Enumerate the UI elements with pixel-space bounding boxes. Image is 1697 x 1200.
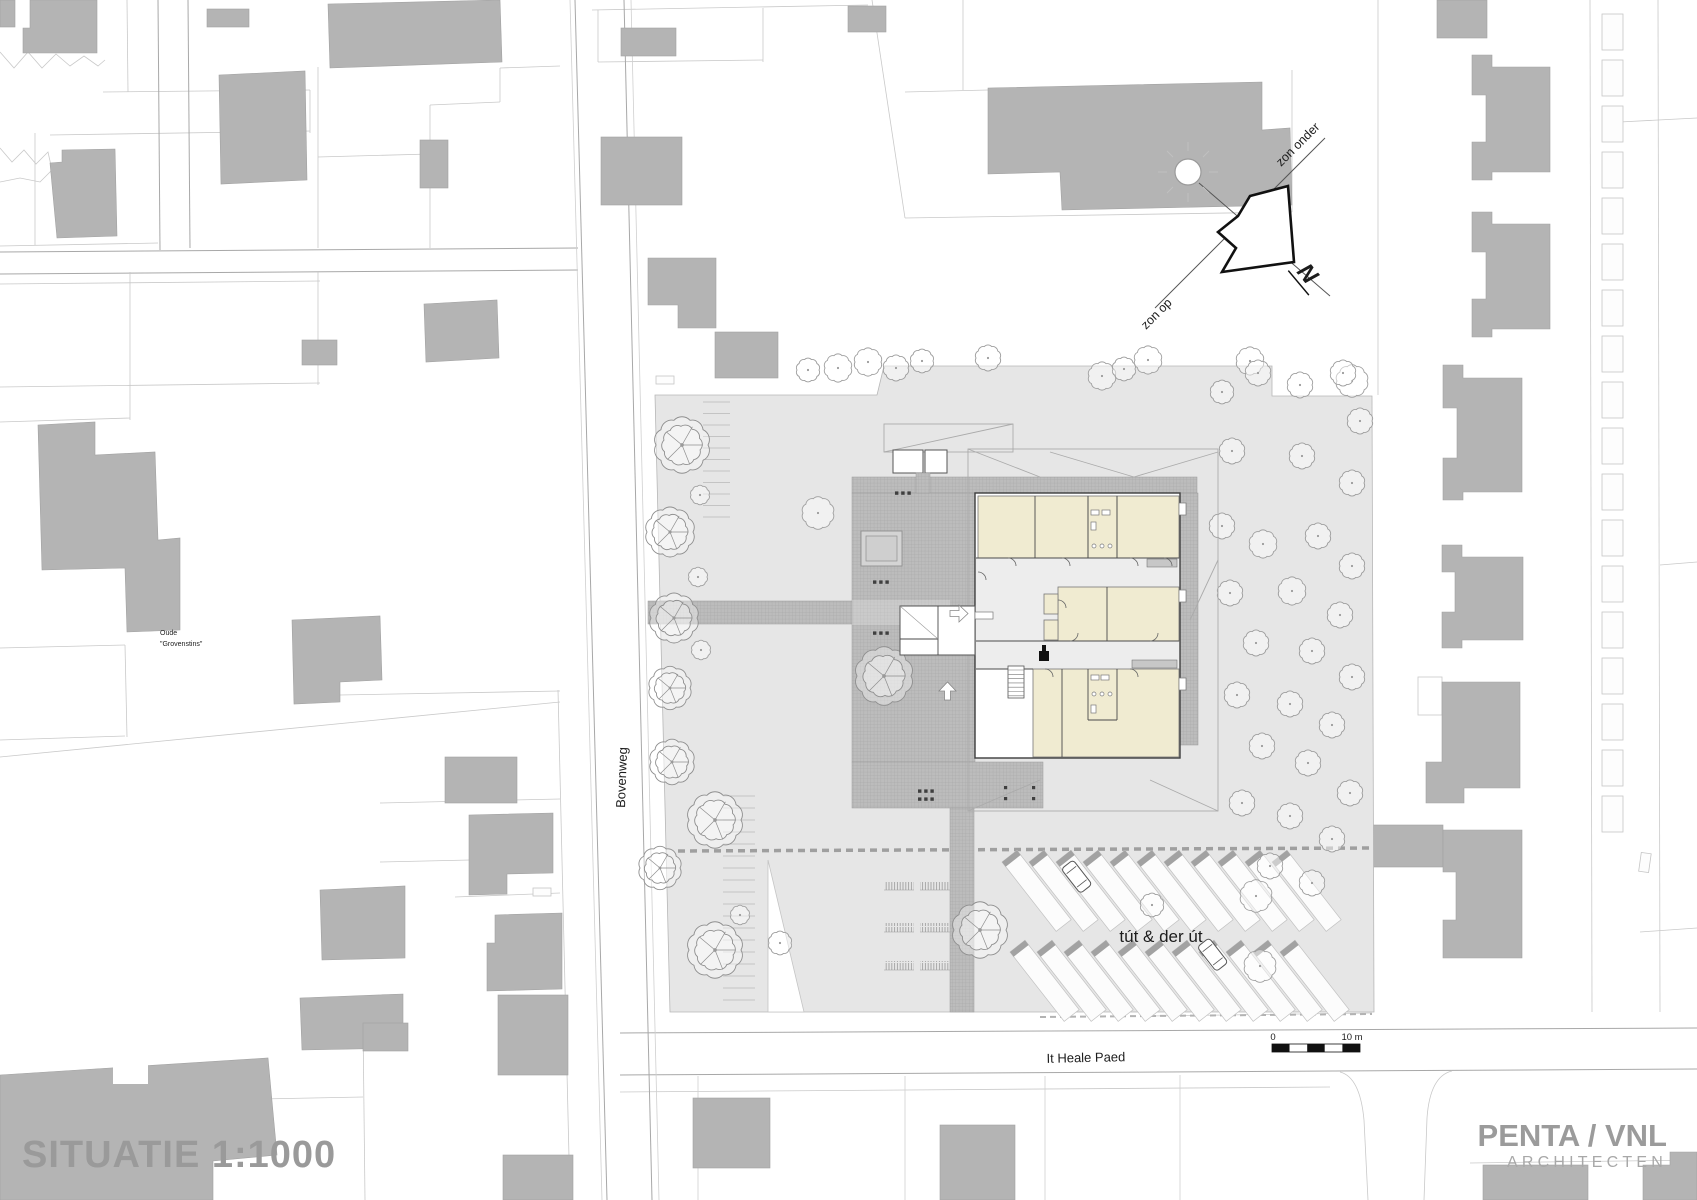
- tree-icon: [1299, 870, 1324, 896]
- tree-trunk: [1151, 904, 1153, 906]
- garden-shed: [1602, 198, 1623, 234]
- tree-icon: [692, 640, 711, 660]
- tree-trunk: [1147, 359, 1149, 361]
- tree-trunk: [1342, 372, 1344, 374]
- tree-icon: [1278, 577, 1305, 605]
- scale-segment: [1342, 1044, 1360, 1052]
- scale-bar: 0 10 m: [1270, 1032, 1362, 1052]
- building-footprint: [601, 137, 682, 205]
- tree-icon: [649, 666, 691, 709]
- tree-trunk: [1261, 745, 1263, 747]
- tree-trunk: [1101, 375, 1103, 377]
- room-small: [1044, 594, 1058, 614]
- paving-east-terrace: [1180, 493, 1198, 745]
- garden-shed: [1602, 612, 1623, 648]
- paving-north-terrace: [852, 477, 1197, 493]
- building-footprint: [988, 82, 1292, 210]
- utility-box: [656, 376, 674, 384]
- tree-icon: [768, 931, 791, 955]
- garden-shed: [1602, 290, 1623, 326]
- tree-trunk: [713, 948, 717, 952]
- tree-icon: [1337, 780, 1362, 806]
- building-footprint: [445, 757, 517, 803]
- site-plan-sheet: N zon op zon onder 0 10 m Bovenweg It He…: [0, 0, 1697, 1200]
- tree-trunk: [895, 367, 897, 369]
- installation-unit: [1147, 559, 1177, 567]
- tree-trunk: [713, 818, 717, 822]
- tree-trunk: [1311, 650, 1313, 652]
- tree-trunk: [1317, 535, 1319, 537]
- tree-icon: [646, 507, 694, 557]
- garden-shed: [1602, 474, 1623, 510]
- tree-icon: [802, 497, 834, 530]
- tree-trunk: [1229, 592, 1231, 594]
- tree-icon: [1347, 408, 1372, 434]
- tree-trunk: [1236, 694, 1238, 696]
- tree-icon: [1249, 530, 1276, 558]
- tree-trunk: [987, 357, 989, 359]
- building-footprint: [1437, 0, 1487, 38]
- building-footprint-rowhouse: [1442, 545, 1523, 648]
- tree-icon: [1088, 362, 1115, 390]
- bench-dot: [930, 797, 933, 800]
- tree-trunk: [1262, 543, 1264, 545]
- room-small: [1044, 620, 1058, 640]
- paving-connector: [916, 473, 930, 493]
- bike-rack: [920, 923, 950, 932]
- tree-icon: [1299, 638, 1324, 664]
- garden-shed: [1602, 336, 1623, 372]
- tree-icon: [1243, 630, 1268, 656]
- tree-icon: [1305, 523, 1330, 549]
- tree-trunk: [1221, 391, 1223, 393]
- tree-icon: [1339, 470, 1364, 496]
- tree-icon: [650, 739, 694, 785]
- tree-icon: [691, 485, 710, 505]
- building-footprint: [693, 1098, 770, 1168]
- installation-unit: [1132, 660, 1177, 668]
- garden-shed: [1602, 60, 1623, 96]
- building-footprint: [621, 28, 676, 56]
- tree-trunk: [1311, 882, 1313, 884]
- tree-icon: [1277, 691, 1302, 717]
- bench-dot: [918, 789, 921, 792]
- tree-trunk: [1359, 420, 1361, 422]
- bench-dot: [873, 580, 876, 583]
- building-footprint: [469, 813, 553, 895]
- building-footprint: [23, 0, 97, 53]
- tree-icon: [1140, 893, 1163, 917]
- stairs: [1008, 666, 1024, 698]
- tree-icon: [1240, 880, 1272, 913]
- tree-icon: [1219, 438, 1244, 464]
- building-footprint: [328, 0, 502, 68]
- tree-trunk: [1291, 590, 1293, 592]
- tree-icon: [824, 354, 851, 382]
- tree-icon: [796, 358, 819, 382]
- tree-trunk: [699, 494, 701, 496]
- garden-shed: [1602, 658, 1623, 694]
- tree-icon: [1244, 950, 1276, 983]
- tree-icon: [1277, 803, 1302, 829]
- bike-rack: [920, 881, 950, 890]
- tree-icon: [1287, 372, 1312, 398]
- room: [1117, 496, 1179, 558]
- building-footprint: [50, 149, 117, 238]
- tree-icon: [1245, 360, 1270, 386]
- building-footprint-rowhouse: [1472, 55, 1550, 180]
- pergola-post: [1004, 786, 1007, 789]
- building-footprint-oude-grovenstins: [38, 422, 180, 632]
- tree-trunk: [1255, 895, 1257, 897]
- old-building-label-line2: "Grovenstins": [160, 641, 203, 648]
- tree-icon: [689, 567, 708, 587]
- tree-icon: [1327, 602, 1352, 628]
- bench-dot: [879, 631, 882, 634]
- planter: [861, 531, 902, 566]
- building-footprint: [1373, 825, 1443, 867]
- tree-icon: [1249, 733, 1274, 759]
- bench-dot: [895, 491, 898, 494]
- bench-dot: [918, 797, 921, 800]
- tree-trunk: [680, 443, 684, 447]
- tree-icon: [953, 902, 1008, 959]
- tree-icon: [1209, 513, 1234, 539]
- logo-subtitle: ARCHITECTEN: [1507, 1154, 1667, 1171]
- sun-icon: [1158, 142, 1218, 202]
- tree-icon: [1210, 380, 1233, 404]
- tree-trunk: [1231, 450, 1233, 452]
- pergola-post: [1032, 797, 1035, 800]
- paving-south-plaza: [852, 762, 1043, 808]
- tree-icon: [639, 846, 681, 889]
- garden-shed: [1602, 704, 1623, 740]
- building-footprint: [320, 886, 405, 960]
- bench-dot: [924, 789, 927, 792]
- building-footprint: [424, 300, 499, 362]
- building-footprint-rowhouse: [1472, 212, 1550, 337]
- tree-icon: [1289, 443, 1314, 469]
- tree-trunk: [669, 687, 672, 690]
- bike-rack: [884, 881, 914, 890]
- garden-shed: [1602, 796, 1623, 832]
- tree-icon: [883, 355, 908, 381]
- tree-trunk: [1331, 838, 1333, 840]
- building-footprint: [848, 6, 886, 32]
- storage-box: [893, 450, 923, 473]
- building-footprint: [498, 995, 568, 1075]
- tree-icon: [854, 348, 881, 376]
- garden-shed: [1602, 566, 1623, 602]
- tree-icon: [1339, 664, 1364, 690]
- building-footprint: [292, 616, 382, 704]
- tree-icon: [650, 593, 698, 643]
- sheet-title: SITUATIE 1:1000: [22, 1134, 336, 1176]
- tree-trunk: [668, 530, 671, 533]
- garden-shed: [1602, 106, 1623, 142]
- building-footprint: [363, 1023, 408, 1051]
- tree-trunk: [779, 942, 781, 944]
- building-footprint: [207, 9, 249, 27]
- garden-shed: [1602, 428, 1623, 464]
- compass-north-label: N: [1291, 259, 1323, 290]
- tree-icon: [1134, 346, 1161, 374]
- building-footprint: [648, 258, 716, 328]
- room: [1058, 587, 1179, 641]
- site-plan-drawing: N zon op zon onder 0 10 m Bovenweg It He…: [0, 0, 1697, 1200]
- tree-trunk: [697, 576, 699, 578]
- building-footprint: [503, 1155, 573, 1200]
- tree-trunk: [739, 914, 741, 916]
- tree-trunk: [1269, 865, 1271, 867]
- street-label-it-heale-paed: It Heale Paed: [1046, 1049, 1125, 1066]
- bench-dot: [879, 580, 882, 583]
- building-footprint: [940, 1125, 1015, 1200]
- old-building-label-line1: Oude: [160, 630, 177, 637]
- tree-trunk: [1255, 642, 1257, 644]
- scale-end-label: 10 m: [1341, 1032, 1362, 1043]
- building-footprint: [715, 332, 778, 378]
- scale-segment: [1325, 1044, 1343, 1052]
- tree-trunk: [1299, 384, 1301, 386]
- tree-trunk: [1339, 614, 1341, 616]
- garden-shed: [1602, 382, 1623, 418]
- tree-icon: [655, 417, 710, 473]
- bike-rack: [884, 923, 914, 932]
- tree-trunk: [1351, 565, 1353, 567]
- tree-trunk: [1331, 724, 1333, 726]
- bench-dot: [924, 797, 927, 800]
- scale-start-label: 0: [1270, 1032, 1275, 1043]
- garden-shed: [1602, 244, 1623, 280]
- garden-shed: [1602, 750, 1623, 786]
- garden-shed: [1602, 14, 1623, 50]
- building-footprint: [219, 71, 307, 184]
- tree-icon: [1112, 357, 1135, 381]
- building-footprint: [420, 140, 448, 188]
- street-label-bovenweg: Bovenweg: [613, 747, 630, 808]
- tree-trunk: [671, 761, 674, 764]
- tree-icon: [688, 922, 743, 979]
- storage-box: [925, 450, 947, 473]
- tree-trunk: [837, 367, 839, 369]
- bench-dot: [873, 631, 876, 634]
- garden-shed: [1602, 520, 1623, 556]
- scale-segment: [1290, 1044, 1308, 1052]
- site-name-label: tút & der út: [1119, 927, 1202, 946]
- tree-icon: [1224, 682, 1249, 708]
- tree-trunk: [700, 649, 702, 651]
- tree-trunk: [1307, 762, 1309, 764]
- sunrise-label: zon op: [1138, 296, 1174, 332]
- bench-dot: [907, 491, 910, 494]
- building-footprint: [487, 913, 562, 991]
- utility-box: [533, 888, 551, 896]
- tree-trunk: [1351, 482, 1353, 484]
- room: [1033, 669, 1179, 757]
- tree-trunk: [978, 928, 982, 932]
- tree-trunk: [1257, 372, 1259, 374]
- tree-trunk: [921, 360, 923, 362]
- bench-dot: [885, 580, 888, 583]
- room: [978, 496, 1088, 558]
- building-footprint: [302, 340, 337, 365]
- tree-trunk: [1123, 368, 1125, 370]
- tree-trunk: [1289, 703, 1291, 705]
- tree-icon: [1330, 360, 1355, 386]
- tree-icon: [910, 349, 933, 373]
- building-notch: [113, 1058, 148, 1084]
- tree-icon: [1339, 553, 1364, 579]
- tree-icon: [1217, 580, 1242, 606]
- tree-icon: [731, 905, 750, 925]
- tree-trunk: [1241, 802, 1243, 804]
- tree-trunk: [817, 512, 819, 514]
- garden-sheds: [1602, 14, 1623, 832]
- tree-trunk: [1289, 815, 1291, 817]
- tree-icon: [1319, 826, 1344, 852]
- scale-segment: [1272, 1044, 1290, 1052]
- logo-name: PENTA / VNL: [1478, 1118, 1667, 1153]
- tree-trunk: [1301, 455, 1303, 457]
- tree-icon: [975, 345, 1000, 371]
- bench-dot: [930, 789, 933, 792]
- bench-dot: [885, 631, 888, 634]
- bike-rack: [884, 961, 914, 970]
- tree-trunk: [672, 616, 675, 619]
- garden-shed: [1602, 152, 1623, 188]
- tree-trunk: [807, 369, 809, 371]
- bench-dot: [901, 491, 904, 494]
- scale-segment: [1307, 1044, 1325, 1052]
- building-footprint-rowhouse: [1443, 830, 1522, 958]
- tree-icon: [1229, 790, 1254, 816]
- tree-icon: [1257, 853, 1282, 879]
- bike-rack: [920, 961, 950, 970]
- tree-trunk: [1351, 676, 1353, 678]
- pergola-post: [1004, 797, 1007, 800]
- reception-desk: [975, 612, 993, 619]
- tree-icon: [688, 792, 743, 849]
- building-outline: [1418, 677, 1442, 715]
- building-footprint: [0, 0, 15, 27]
- tree-icon: [1319, 712, 1344, 738]
- tree-trunk: [659, 867, 662, 870]
- building-footprint-rowhouse: [1443, 365, 1522, 500]
- building-footprint-rowhouse: [1426, 682, 1520, 803]
- tree-icon: [1295, 750, 1320, 776]
- tree-trunk: [867, 361, 869, 363]
- tree-trunk: [1259, 965, 1261, 967]
- tree-trunk: [1349, 792, 1351, 794]
- tree-trunk: [882, 674, 886, 678]
- tree-trunk: [1221, 525, 1223, 527]
- pergola-post: [1032, 786, 1035, 789]
